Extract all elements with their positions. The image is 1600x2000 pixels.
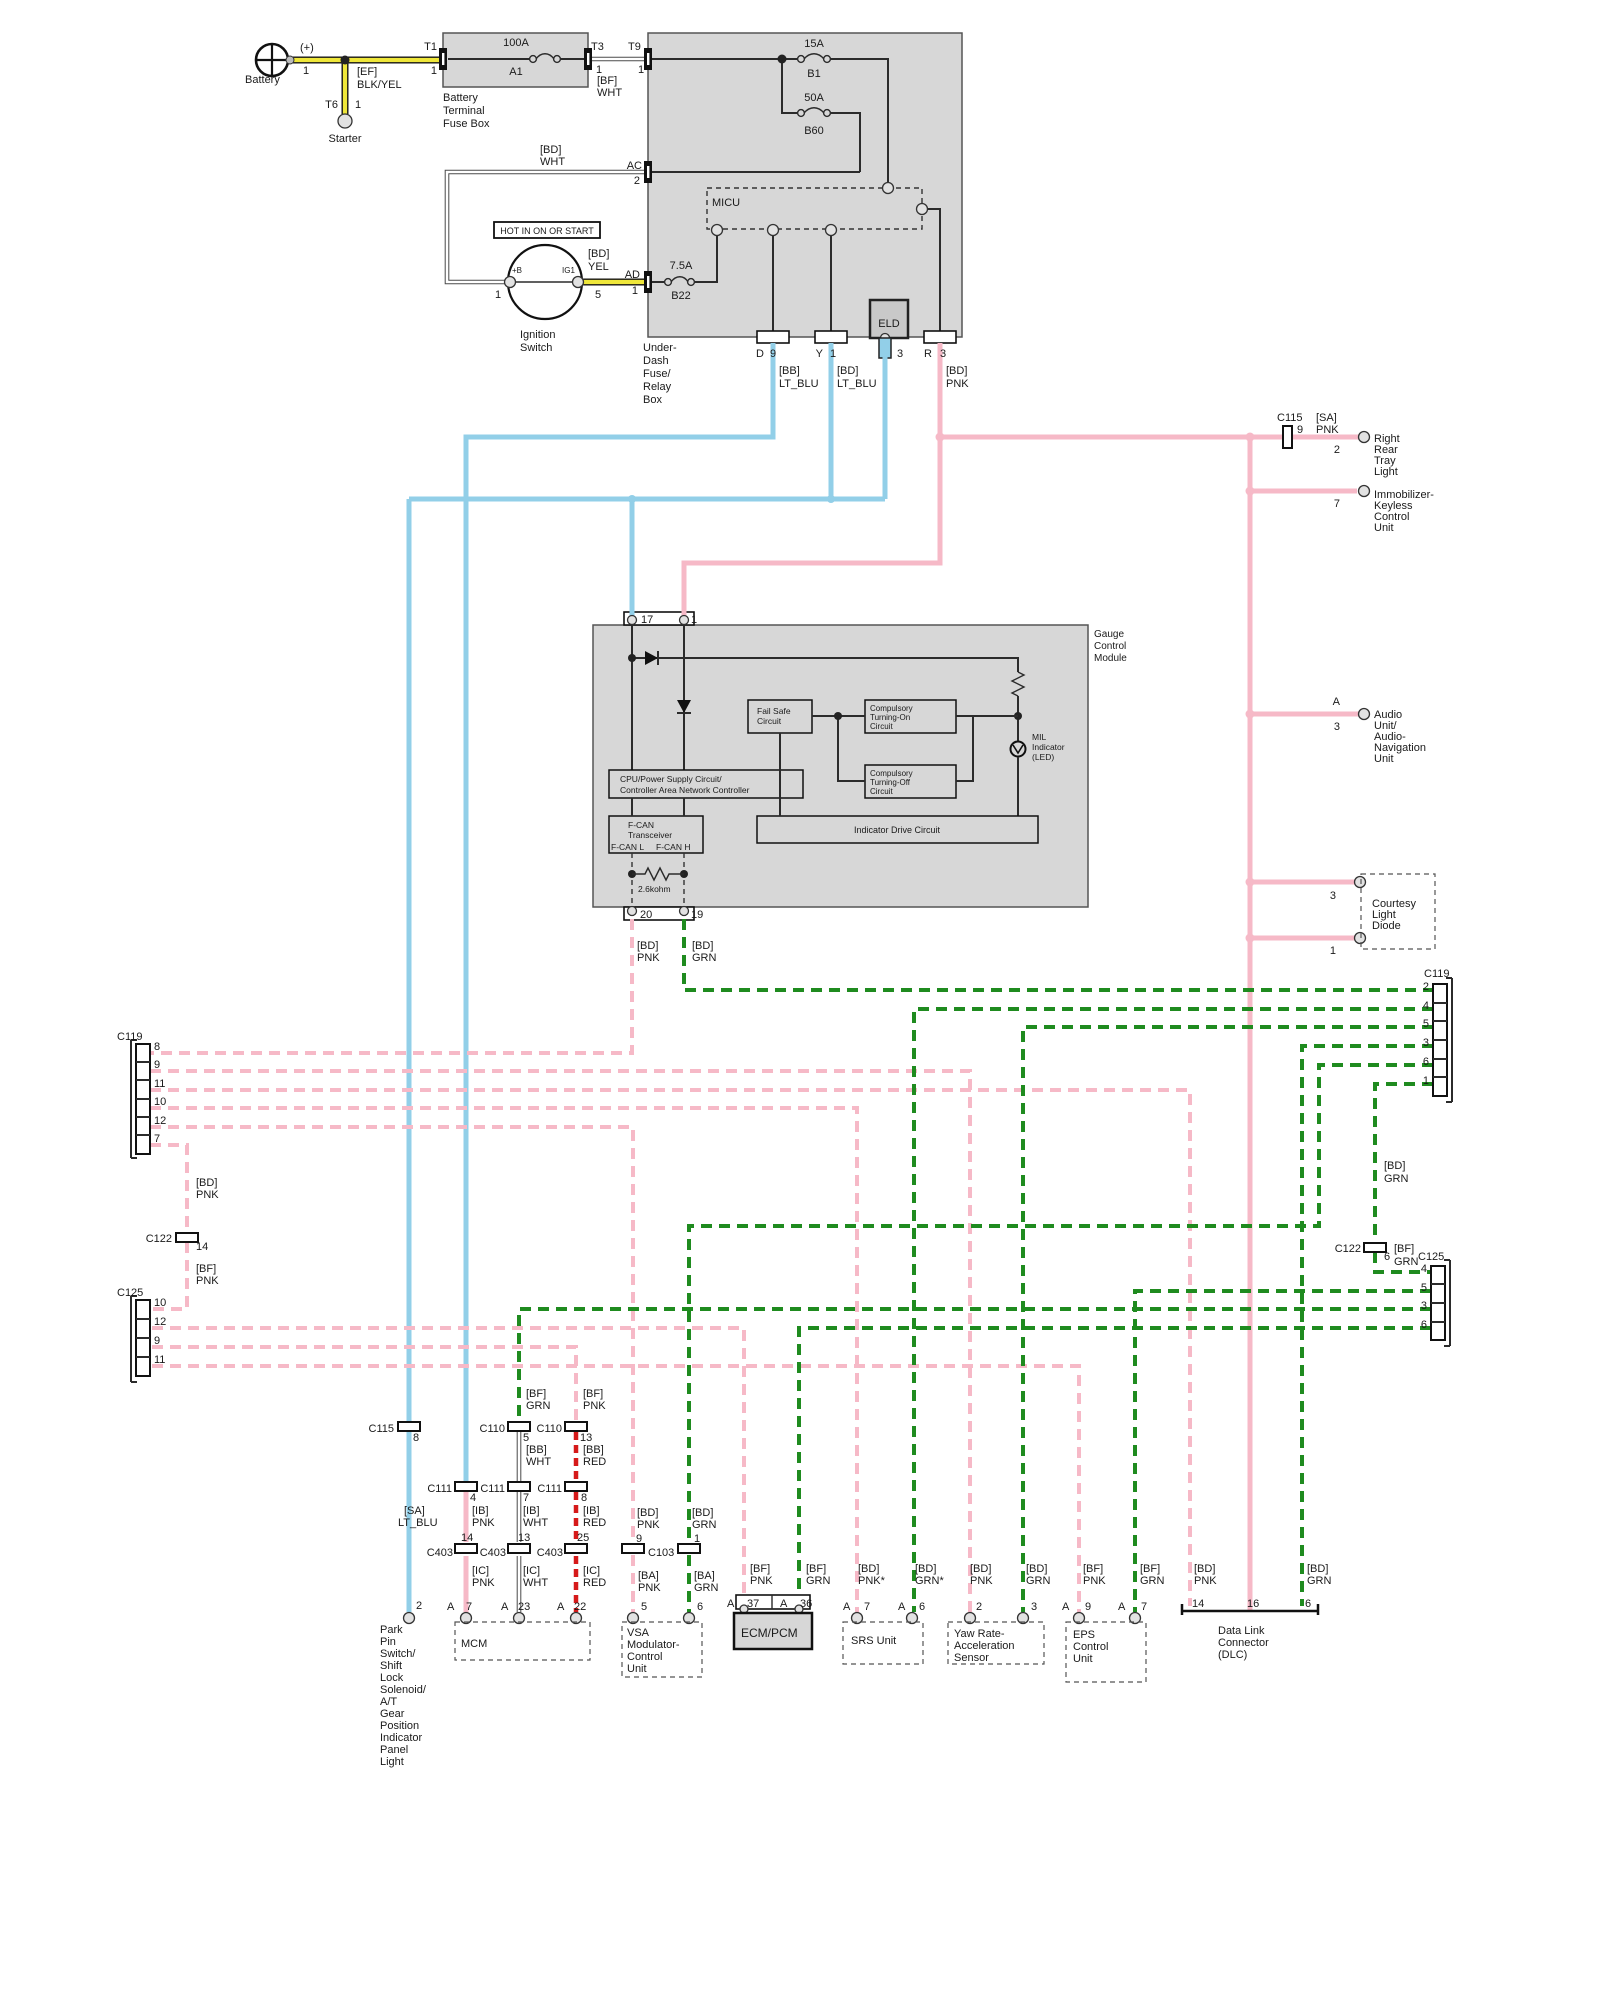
starter-pin: 1 [355, 99, 361, 111]
wire-ef2: BLK/YEL [357, 79, 402, 91]
wire-bd-pnk: [BD] [946, 365, 967, 377]
fuse-b60: B60 [804, 125, 824, 137]
yaw-name3: Sensor [954, 1652, 989, 1664]
c125r-p6: 6 [1421, 1319, 1427, 1331]
ic-wht: [IC] [523, 1565, 540, 1577]
underdash-name: Under- [643, 342, 677, 354]
pin-strip-y [815, 331, 847, 343]
connector-c125-left [131, 1296, 150, 1382]
fuse-75a: 7.5A [670, 260, 693, 272]
park-name7: A/T [380, 1696, 397, 1708]
connector-c119-left [131, 1040, 150, 1158]
ib-wht: [IB] [523, 1505, 540, 1517]
ignition-switch [494, 222, 600, 319]
wire-bd-wht: [BD] [540, 144, 561, 156]
bb-red2: RED [583, 1456, 606, 1468]
tray-pin: 2 [1334, 444, 1340, 456]
bd-pnk-srs: [BD] [858, 1563, 879, 1575]
fuse-b1: B1 [807, 68, 820, 80]
ad: AD [625, 269, 640, 281]
park-name2: Pin [380, 1636, 396, 1648]
park-name4: Shift [380, 1660, 402, 1672]
park-name5: Lock [380, 1672, 404, 1684]
c115tr-pin: 9 [1297, 424, 1303, 436]
connector-c103-9 [622, 1544, 644, 1553]
dlc-p14: 14 [1192, 1598, 1204, 1610]
gauge-name3: Module [1094, 653, 1127, 664]
bf-grn-r: [BF] [1394, 1243, 1414, 1255]
diagram-canvas: (+)1Battery[EF]BLK/YELT61StarterT11100AA… [0, 0, 1600, 2000]
c122l: C122 [146, 1233, 172, 1245]
pin-eld3: 3 [897, 348, 903, 360]
c103b-pin: 1 [694, 1533, 700, 1545]
eps-name2: Control [1073, 1641, 1108, 1653]
connectors-vertical [131, 978, 1452, 1382]
wire-sa-pnk: [SA] [1316, 412, 1337, 424]
pin-y: Y [816, 348, 824, 360]
battery-name: Battery [245, 74, 280, 86]
bb-red: [BB] [583, 1444, 604, 1456]
battery-fusebox-name: Battery [443, 92, 478, 104]
mcm-a7a: A [447, 1601, 455, 1613]
battery-fusebox-name2: Terminal [443, 105, 485, 117]
c122r: C122 [1335, 1243, 1361, 1255]
wire-bd-yel: [BD] [588, 248, 609, 260]
bd-grn-srs: [BD] [915, 1563, 936, 1575]
gauge-name2: Control [1094, 641, 1126, 652]
srs-a7a: A [843, 1601, 851, 1613]
bd-grn-yaw: [BD] [1026, 1563, 1047, 1575]
c125r-p3: 3 [1421, 1300, 1427, 1312]
wiring-diagram: (+)1Battery[EF]BLK/YELT61StarterT11100AA… [0, 0, 1600, 2000]
underdash-name2: Dash [643, 355, 669, 367]
yaw-p2: 2 [976, 1601, 982, 1613]
park-name12: Light [380, 1756, 404, 1768]
c110a: C110 [480, 1423, 505, 1435]
bf-pnk-b2: PNK [583, 1400, 606, 1412]
park-name8: Gear [380, 1708, 405, 1720]
bf-grn-r2: GRN [1394, 1256, 1419, 1268]
c119l-p12: 12 [154, 1115, 166, 1127]
srs-a7b: 7 [864, 1601, 870, 1613]
turnoff: Compulsory [870, 769, 913, 778]
turnon2: Turning-On [870, 713, 910, 722]
connector-c119-right [1433, 978, 1452, 1102]
bd-pnk-yaw: [BD] [970, 1563, 991, 1575]
starter-t6: T6 [325, 99, 338, 111]
t1: T1 [424, 41, 437, 53]
bf-grn-b2: GRN [526, 1400, 551, 1412]
fuse-50a: 50A [804, 92, 824, 104]
g20-wire2: PNK [637, 952, 660, 964]
bb-wht2: WHT [526, 1456, 551, 1468]
bd-pnk-srs2: PNK* [858, 1575, 886, 1587]
ecm-name: ECM/PCM [741, 1626, 798, 1640]
t9: T9 [628, 41, 641, 53]
bd-pnk-l2: PNK [196, 1189, 219, 1201]
srs-a6b: 6 [919, 1601, 925, 1613]
dlc-name: Data Link [1218, 1625, 1265, 1637]
bd-pnk-l: [BD] [196, 1177, 217, 1189]
c111a: C111 [427, 1483, 452, 1495]
pin-r3: 3 [940, 348, 946, 360]
courtesy-pin1: 1 [1330, 945, 1336, 957]
battery-symbol [256, 44, 294, 76]
pin-strip-d [757, 331, 789, 343]
gauge-control-module-box [593, 625, 1088, 907]
c122r-pin: 6 [1384, 1251, 1390, 1263]
bf-grn-b: [BF] [526, 1388, 546, 1400]
park-name1: Park [380, 1624, 403, 1636]
cpu: CPU/Power Supply Circuit/ [620, 774, 722, 784]
c403b-pin: 13 [518, 1532, 530, 1544]
g19-wire2: GRN [692, 952, 717, 964]
hot-label: HOT IN ON OR START [500, 226, 594, 236]
connector-c403-14 [455, 1544, 477, 1553]
pink-solid-wires [466, 343, 1360, 1612]
gauge-pin1: 1 [691, 614, 697, 626]
wire-bd-ltblu: [BD] [837, 365, 858, 377]
fcan2: Transceiver [628, 830, 672, 840]
wire-bd-wht2: WHT [540, 156, 565, 168]
ba-pnk: [BA] [638, 1570, 659, 1582]
park-name11: Panel [380, 1744, 408, 1756]
park-name3: Switch/ [380, 1648, 416, 1660]
bd-grn-r2: GRN [1384, 1173, 1409, 1185]
ib-red: [IB] [583, 1505, 600, 1517]
c125l: C125 [117, 1287, 143, 1299]
ignition-name: Ignition [520, 329, 555, 341]
yaw-name: Yaw Rate- [954, 1628, 1005, 1640]
fuse-100a: 100A [503, 37, 529, 49]
wire-bb-ltblu2: LT_BLU [779, 378, 819, 390]
audio-terminal [1359, 709, 1370, 720]
ib-pnk2: PNK [472, 1517, 495, 1529]
connector-c403-25 [565, 1544, 587, 1553]
tray-name4: Light [1374, 466, 1398, 478]
connector-c110-5 [508, 1422, 530, 1431]
ac: AC [627, 160, 642, 172]
turnon3: Circuit [870, 722, 893, 731]
yaw-p3: 3 [1031, 1601, 1037, 1613]
ic-red: [IC] [583, 1565, 600, 1577]
failsafe2: Circuit [757, 716, 782, 726]
battery-fusebox-name3: Fuse Box [443, 118, 490, 130]
ecm-a37b: 37 [747, 1598, 759, 1610]
ib-wht2: WHT [523, 1517, 548, 1529]
courtesy-name3: Diode [1372, 920, 1401, 932]
c110a-pin: 5 [523, 1432, 529, 1444]
t1-pin: 1 [431, 65, 437, 77]
light-blue-wires [409, 343, 885, 1612]
eps-a7a: A [1118, 1601, 1126, 1613]
g19-wire: [BD] [692, 940, 713, 952]
vsa-p6: 6 [697, 1601, 703, 1613]
wire-bd-yel2: YEL [588, 261, 609, 273]
dlc-p16: 16 [1247, 1598, 1259, 1610]
fuse-b22: B22 [671, 290, 691, 302]
under-dash-fuse-relay-box [648, 33, 962, 337]
ecm-a37a: A [727, 1598, 735, 1610]
ecm-a36b: 36 [800, 1598, 812, 1610]
bf-grn-eps2: GRN [1140, 1575, 1165, 1587]
t3: T3 [591, 41, 604, 53]
bd-pnk-dlc: [BD] [1194, 1563, 1215, 1575]
mil3: (LED) [1032, 752, 1054, 762]
connector-c115-bottom [398, 1422, 420, 1431]
bf-grn-ecm: [BF] [806, 1563, 826, 1575]
yaw-name2: Acceleration [954, 1640, 1015, 1652]
bd-grn-yaw2: GRN [1026, 1575, 1051, 1587]
srs-name: SRS Unit [851, 1635, 896, 1647]
bf-pnk-ecm2: PNK [750, 1575, 773, 1587]
c115bl: C115 [369, 1423, 394, 1435]
ic-pnk2: PNK [472, 1577, 495, 1589]
connector-c103-1 [678, 1544, 700, 1553]
dlc-name2: Connector [1218, 1637, 1269, 1649]
bf-pnk-l2: PNK [196, 1275, 219, 1287]
c125r-p5: 5 [1421, 1282, 1427, 1294]
underdash-name5: Box [643, 394, 662, 406]
ign-ig1: IG1 [562, 266, 575, 275]
park-name10: Indicator [380, 1732, 423, 1744]
micu-name: MICU [712, 197, 740, 209]
c403a-pin: 14 [461, 1532, 473, 1544]
battery-pin: 1 [303, 65, 309, 77]
res26: 2.6kohm [638, 884, 671, 894]
connector-c110-13 [565, 1422, 587, 1431]
ad-pin: 1 [632, 285, 638, 297]
ic-pnk: [IC] [472, 1565, 489, 1577]
c115tr: C115 [1277, 412, 1302, 424]
eps-name: EPS [1073, 1629, 1095, 1641]
mcm-a22b: 22 [574, 1601, 586, 1613]
wire-bf-wht: [BF] [597, 75, 617, 87]
starter-terminal [338, 114, 352, 128]
mcm-a23a: A [501, 1601, 509, 1613]
c119r: C119 [1424, 968, 1449, 980]
sa-ltblu: [SA] [404, 1505, 425, 1517]
dlc-p6: 6 [1305, 1598, 1311, 1610]
wire-sa-pnk2: PNK [1316, 424, 1339, 436]
audio-a: A [1333, 696, 1341, 708]
connector-c111-4 [455, 1482, 477, 1491]
park-name9: Position [380, 1720, 419, 1732]
c119l-p11: 11 [154, 1078, 165, 1090]
c119r-p3: 3 [1423, 1037, 1429, 1049]
bf-pnk-ecm: [BF] [750, 1563, 770, 1575]
bf-pnk-b: [BF] [583, 1388, 603, 1400]
sa-ltblu2: LT_BLU [398, 1517, 438, 1529]
c125r-p4: 4 [1421, 1263, 1427, 1275]
vsa-name: VSA [627, 1627, 650, 1639]
c119l: C119 [117, 1031, 142, 1043]
bf-pnk-eps2: PNK [1083, 1575, 1106, 1587]
vsa-name2: Modulator- [627, 1639, 680, 1651]
c403c-pin: 25 [577, 1532, 589, 1544]
pin-r: R [924, 348, 932, 360]
mil2: Indicator [1032, 742, 1065, 752]
wire-ef: [EF] [357, 66, 377, 78]
pin-d: D [756, 348, 764, 360]
wire-bb-ltblu: [BB] [779, 365, 800, 377]
ic-wht2: WHT [523, 1577, 548, 1589]
immob-name4: Unit [1374, 522, 1394, 534]
c103: C103 [648, 1547, 674, 1559]
eps-name3: Unit [1073, 1653, 1093, 1665]
ba-grn2: GRN [694, 1582, 719, 1594]
ic-red2: RED [583, 1577, 606, 1589]
bd-grn-dlc2: GRN [1307, 1575, 1332, 1587]
pink-dashed-wires [150, 919, 1190, 1612]
bb-wht: [BB] [526, 1444, 547, 1456]
mcm-name: MCM [461, 1638, 487, 1650]
courtesy-terminal-1 [1355, 933, 1366, 944]
c119l-p10: 10 [154, 1096, 166, 1108]
bd-pnk-c1032: PNK [637, 1519, 660, 1531]
g20-wire: [BD] [637, 940, 658, 952]
bd-grn-c1032: GRN [692, 1519, 717, 1531]
ign-pin1: 1 [495, 289, 501, 301]
c403c: C403 [537, 1547, 563, 1559]
bd-grn-r: [BD] [1384, 1160, 1405, 1172]
srs-a6a: A [898, 1601, 906, 1613]
connector-c115-top [1283, 426, 1292, 448]
courtesy-terminal-3 [1355, 877, 1366, 888]
c110b-pin: 13 [580, 1432, 592, 1444]
c103a-pin: 9 [636, 1533, 642, 1545]
c110b: C110 [537, 1423, 562, 1435]
c403a: C403 [427, 1547, 453, 1559]
connector-c122-left [176, 1233, 198, 1242]
bd-grn-srs2: GRN* [915, 1575, 944, 1587]
c119r-p1: 1 [1423, 1075, 1429, 1087]
ac-pin: 2 [634, 175, 640, 187]
gauge-pin17: 17 [641, 614, 653, 626]
wire-bf-wht2: WHT [597, 87, 622, 99]
c111c: C111 [537, 1483, 562, 1495]
ba-pnk2: PNK [638, 1582, 661, 1594]
idc: Indicator Drive Circuit [854, 825, 941, 835]
ib-red2: RED [583, 1517, 606, 1529]
pin-strip-r [924, 331, 956, 343]
eps-a9b: 9 [1085, 1601, 1091, 1613]
c122l-pin: 14 [196, 1241, 208, 1253]
mil: MIL [1032, 732, 1046, 742]
tray-light-terminal [1359, 432, 1370, 443]
c125r: C125 [1418, 1251, 1444, 1263]
bf-pnk-eps: [BF] [1083, 1563, 1103, 1575]
c111b-pin: 7 [523, 1492, 529, 1504]
immob-pin: 7 [1334, 498, 1340, 510]
dlc-name3: (DLC) [1218, 1649, 1247, 1661]
bf-pnk-l: [BF] [196, 1263, 216, 1275]
ign-pin5: 5 [595, 289, 601, 301]
eld-name: ELD [878, 318, 899, 330]
c119r-p2: 2 [1423, 981, 1429, 993]
c115bl-pin: 8 [413, 1432, 419, 1444]
fuse-a1: A1 [509, 66, 522, 78]
bd-pnk-dlc2: PNK [1194, 1575, 1217, 1587]
c403b: C403 [480, 1547, 506, 1559]
turnoff2: Turning-Off [870, 778, 911, 787]
failsafe: Fail Safe [757, 706, 791, 716]
connector-c403-13 [508, 1544, 530, 1553]
connector-c122-right [1364, 1243, 1386, 1252]
wire-bd-ltblu2: LT_BLU [837, 378, 877, 390]
c119r-p5: 5 [1423, 1018, 1429, 1030]
bf-grn-ecm2: GRN [806, 1575, 831, 1587]
audio-pin: 3 [1334, 721, 1340, 733]
bd-grn-dlc: [BD] [1307, 1563, 1328, 1575]
c125l-p9: 9 [154, 1335, 160, 1347]
pin-d9: 9 [770, 348, 776, 360]
vsa-p5: 5 [641, 1601, 647, 1613]
park-name6: Solenoid/ [380, 1684, 427, 1696]
c119l-p8: 8 [154, 1041, 160, 1053]
gauge-name: Gauge [1094, 629, 1124, 640]
c111c-pin: 8 [581, 1492, 587, 1504]
ecm-a36a: A [780, 1598, 788, 1610]
bd-pnk-yaw2: PNK [970, 1575, 993, 1587]
gauge-pin19: 19 [691, 909, 703, 921]
ignition-name2: Switch [520, 342, 552, 354]
bd-grn-c103: [BD] [692, 1507, 713, 1519]
t9-pin: 1 [638, 64, 644, 76]
underdash-name4: Relay [643, 381, 672, 393]
bd-pnk-c103: [BD] [637, 1507, 658, 1519]
c111b: C111 [480, 1483, 505, 1495]
c119l-p9: 9 [154, 1059, 160, 1071]
turnoff3: Circuit [870, 787, 893, 796]
audio-name5: Unit [1374, 753, 1394, 765]
gauge-pin20: 20 [640, 909, 652, 921]
ign-b: +B [512, 266, 522, 275]
immobilizer-terminal [1359, 486, 1370, 497]
eps-a9a: A [1062, 1601, 1070, 1613]
c119l-p7: 7 [154, 1133, 160, 1145]
fuse-15a: 15A [804, 38, 824, 50]
park-pin: 2 [416, 1600, 422, 1612]
turnon: Compulsory [870, 704, 913, 713]
mcm-a22a: A [557, 1601, 565, 1613]
fcanl: F-CAN L [611, 842, 644, 852]
starter-name: Starter [328, 133, 361, 145]
courtesy-pin3: 3 [1330, 890, 1336, 902]
battery-plus: (+) [300, 42, 314, 54]
cpu2: Controller Area Network Controller [620, 785, 750, 795]
connector-c111-7 [508, 1482, 530, 1491]
c111a-pin: 4 [470, 1492, 476, 1504]
c119r-p6: 6 [1423, 1056, 1429, 1068]
pin-y1: 1 [830, 348, 836, 360]
vsa-name3: Control [627, 1651, 662, 1663]
ba-grn: [BA] [694, 1570, 715, 1582]
connector-c125-right [1431, 1260, 1450, 1346]
fcan: F-CAN [628, 820, 654, 830]
bf-grn-eps: [BF] [1140, 1563, 1160, 1575]
underdash-name3: Fuse/ [643, 368, 671, 380]
fcanh: F-CAN H [656, 842, 690, 852]
mcm-a7b: 7 [466, 1601, 472, 1613]
eld-pin [879, 338, 891, 358]
wire-bd-pnk2: PNK [946, 378, 969, 390]
connector-c111-8 [565, 1482, 587, 1491]
park-pin-terminal [404, 1613, 415, 1624]
c125l-p11: 11 [154, 1354, 165, 1366]
mcm-a23b: 23 [518, 1601, 530, 1613]
c125l-p12: 12 [154, 1316, 166, 1328]
